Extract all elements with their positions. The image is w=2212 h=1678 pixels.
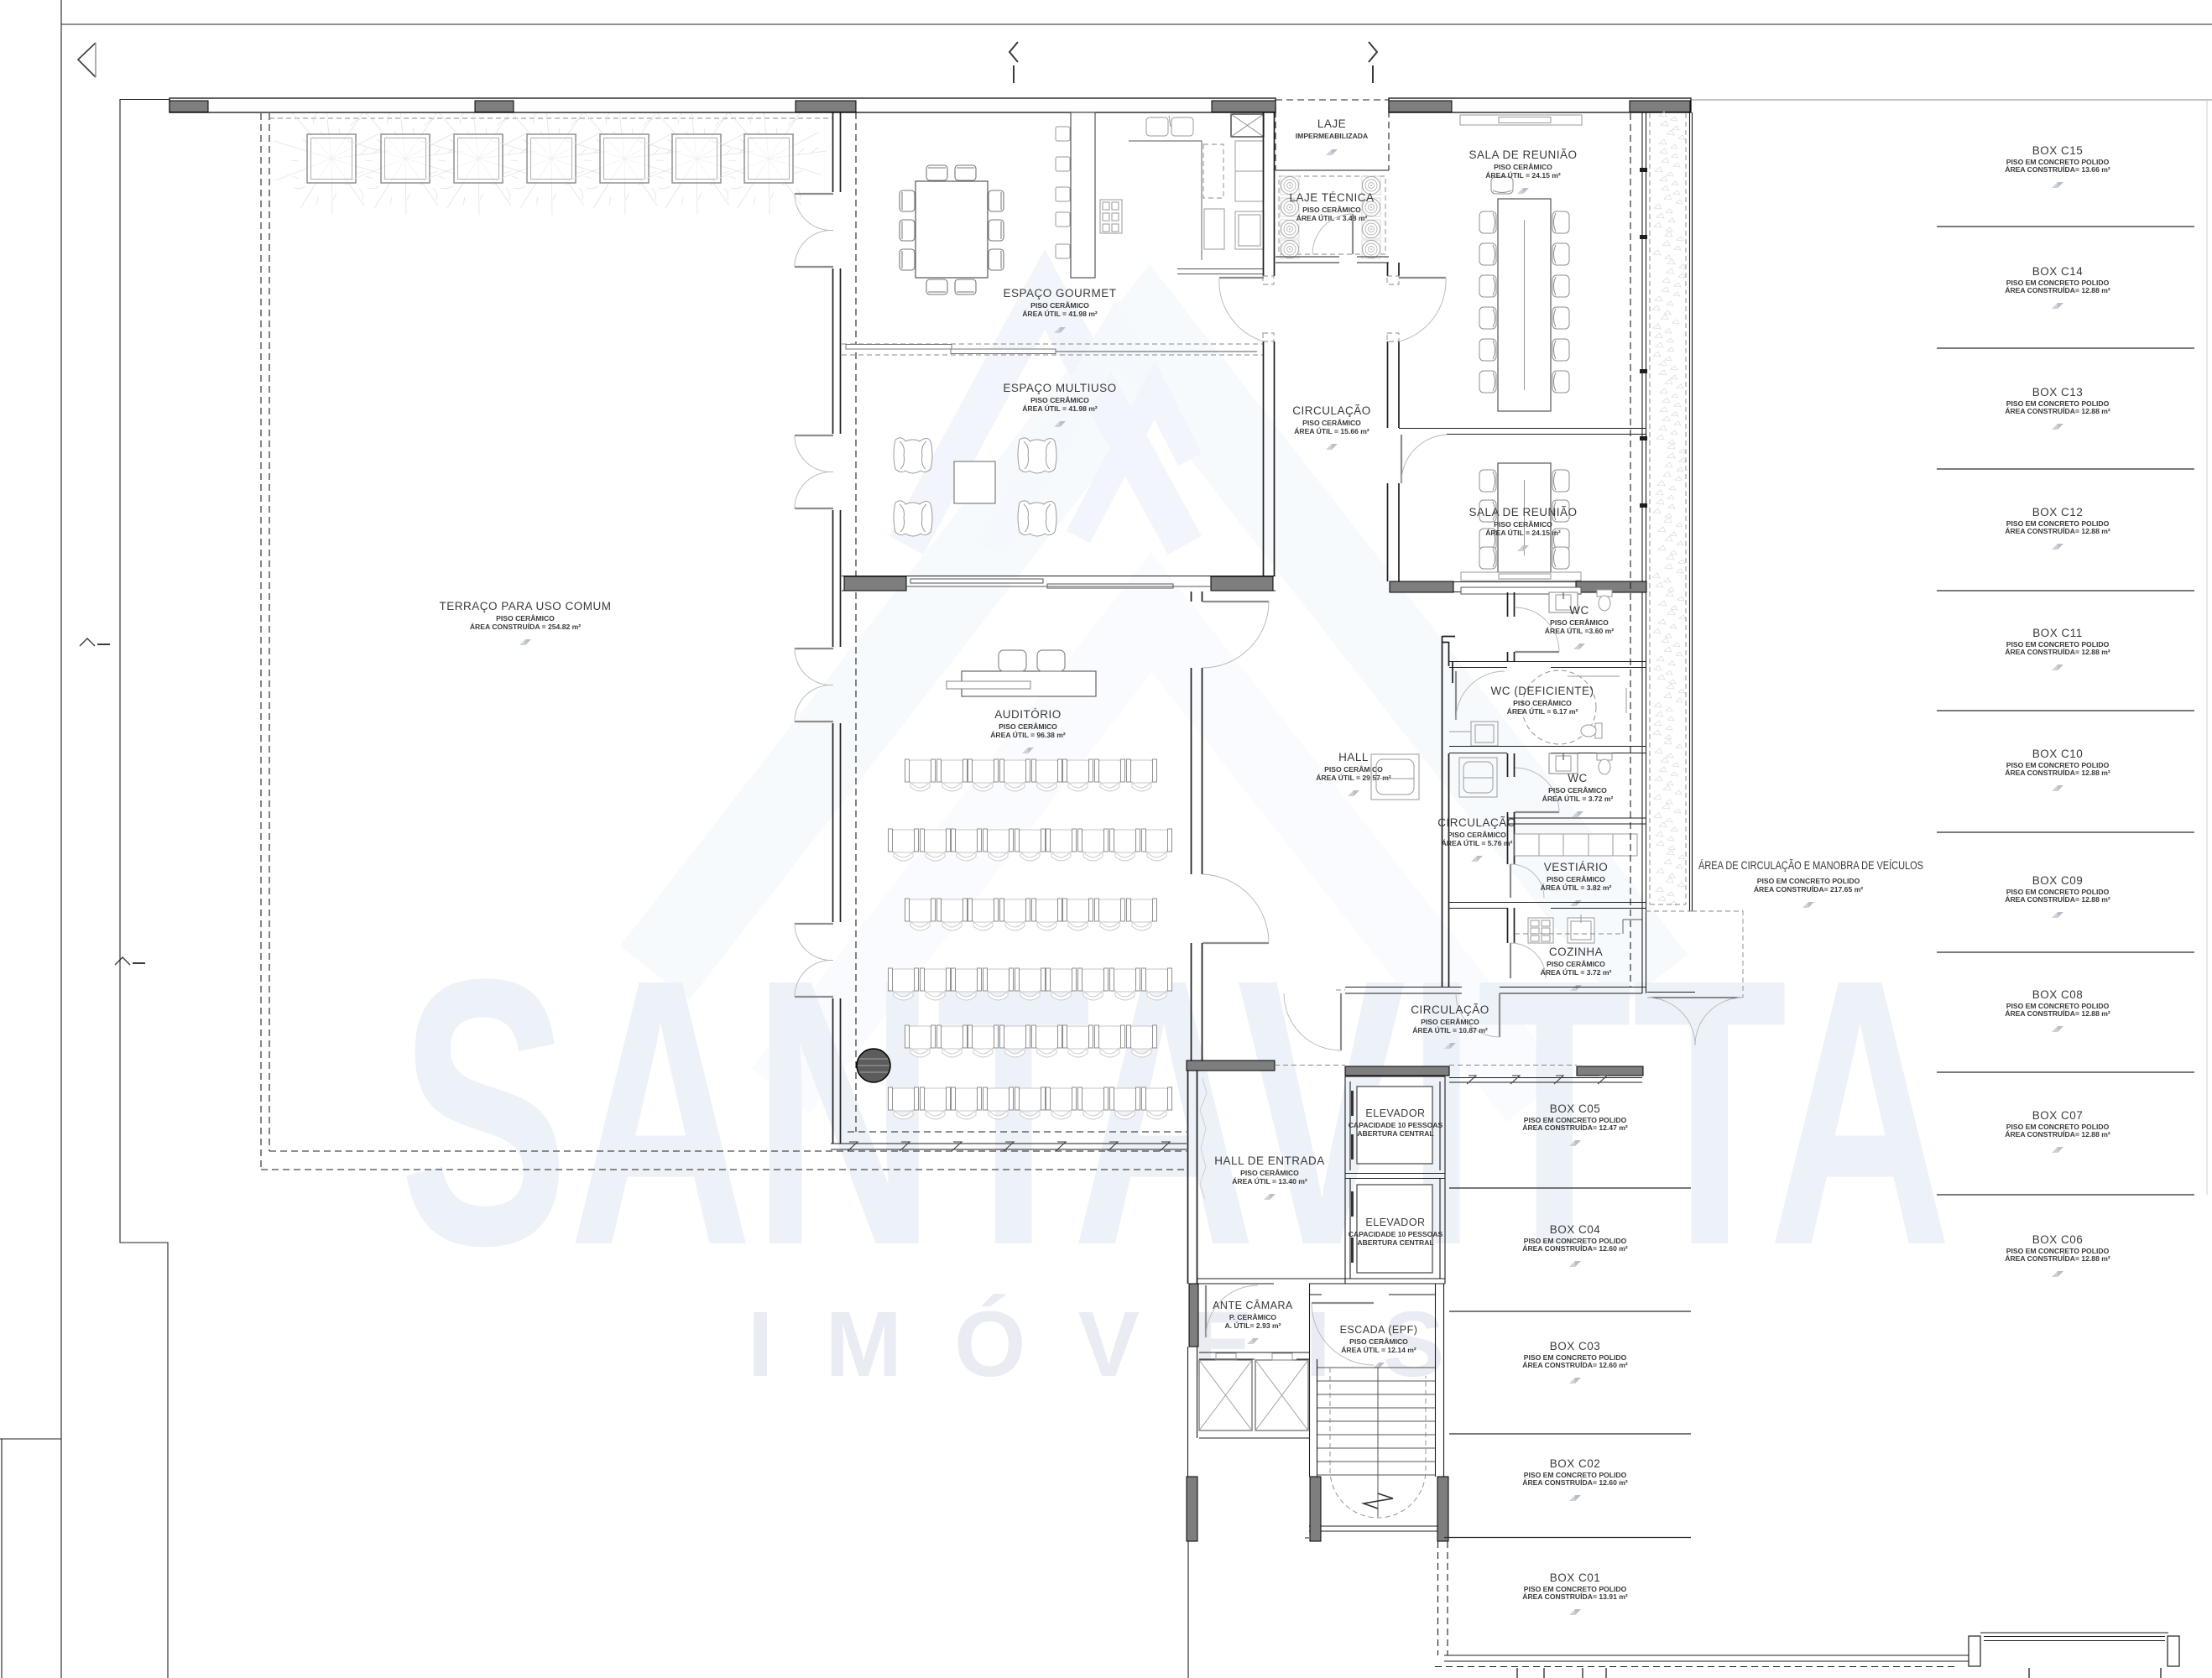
- svg-text:BOX C14: BOX C14: [2032, 265, 2084, 278]
- svg-text:HALL DE ENTRADA: HALL DE ENTRADA: [1214, 1154, 1325, 1167]
- svg-text:AUDITÓRIO: AUDITÓRIO: [994, 708, 1062, 721]
- svg-text:ABERTURA CENTRAL: ABERTURA CENTRAL: [1357, 1129, 1433, 1138]
- svg-text:PISO CERÂMICO: PISO CERÂMICO: [1494, 162, 1552, 171]
- svg-text:PISO CERÂMICO: PISO CERÂMICO: [496, 613, 555, 623]
- svg-text:ESPAÇO GOURMET: ESPAÇO GOURMET: [1003, 287, 1116, 300]
- svg-text:ÁREA CONSTRUÍDA= 13.66 m²: ÁREA CONSTRUÍDA= 13.66 m²: [2005, 165, 2110, 174]
- svg-text:ÁREA ÚTIL = 24.15 m²: ÁREA ÚTIL = 24.15 m²: [1485, 528, 1561, 537]
- svg-text:ÁREA CONSTRUÍDA= 12.88 m²: ÁREA CONSTRUÍDA= 12.88 m²: [2005, 769, 2110, 777]
- svg-text:ÁREA ÚTIL = 3.72 m²: ÁREA ÚTIL = 3.72 m²: [1541, 967, 1612, 977]
- svg-text:BOX C05: BOX C05: [1550, 1102, 1601, 1115]
- svg-text:BOX C06: BOX C06: [2032, 1233, 2084, 1246]
- svg-text:ÁREA ÚTIL = 24.15 m²: ÁREA ÚTIL = 24.15 m²: [1485, 170, 1561, 180]
- svg-text:LAJE TÉCNICA: LAJE TÉCNICA: [1289, 191, 1374, 204]
- svg-text:ÁREA ÚTIL = 3.48 m²: ÁREA ÚTIL = 3.48 m²: [1296, 213, 1368, 222]
- svg-text:ÁREA CONSTRUÍDA= 12.88 m²: ÁREA CONSTRUÍDA= 12.88 m²: [2005, 1009, 2110, 1018]
- svg-text:PISO CERÂMICO: PISO CERÂMICO: [1302, 418, 1361, 427]
- svg-text:BOX C13: BOX C13: [2032, 386, 2084, 399]
- svg-text:BOX C11: BOX C11: [2032, 627, 2083, 639]
- svg-text:ÁREA ÚTIL = 41.98 m²: ÁREA ÚTIL = 41.98 m²: [1022, 404, 1098, 413]
- svg-text:ESCADA (EPF): ESCADA (EPF): [1340, 1324, 1418, 1336]
- svg-text:HALL: HALL: [1338, 751, 1369, 763]
- svg-text:LAJE: LAJE: [1317, 117, 1346, 130]
- svg-text:IMPERMEABILIZADA: IMPERMEABILIZADA: [1296, 132, 1368, 140]
- svg-text:ANTE CÂMARA: ANTE CÂMARA: [1213, 1299, 1293, 1311]
- svg-text:PISO CERÂMICO: PISO CERÂMICO: [1421, 1017, 1479, 1026]
- svg-text:PISO CERÂMICO: PISO CERÂMICO: [1494, 519, 1552, 529]
- svg-text:A. ÚTIL= 2.93 m²: A. ÚTIL= 2.93 m²: [1224, 1321, 1281, 1330]
- svg-text:ESPAÇO MULTIUSO: ESPAÇO MULTIUSO: [1003, 382, 1116, 394]
- svg-text:PISO CERÂMICO: PISO CERÂMICO: [1030, 300, 1089, 310]
- svg-text:ÁREA ÚTIL = 41.98 m²: ÁREA ÚTIL = 41.98 m²: [1022, 309, 1098, 318]
- svg-text:VESTIÁRIO: VESTIÁRIO: [1544, 861, 1609, 873]
- svg-text:PISO CERÂMICO: PISO CERÂMICO: [1030, 395, 1089, 404]
- svg-text:BOX C08: BOX C08: [2032, 988, 2084, 1001]
- svg-text:ÁREA ÚTIL = 3.72 m²: ÁREA ÚTIL = 3.72 m²: [1542, 794, 1614, 803]
- svg-text:ÁREA CONSTRUÍDA= 12.88 m²: ÁREA CONSTRUÍDA= 12.88 m²: [2005, 895, 2110, 904]
- svg-text:WC (DEFICIENTE): WC (DEFICIENTE): [1491, 685, 1594, 697]
- svg-text:ÁREA CONSTRUÍDA= 12.60 m²: ÁREA CONSTRUÍDA= 12.60 m²: [1522, 1244, 1628, 1253]
- svg-text:PISO CERÂMICO: PISO CERÂMICO: [1547, 959, 1605, 968]
- svg-text:ÁREA ÚTIL = 29.57 m²: ÁREA ÚTIL = 29.57 m²: [1316, 773, 1391, 782]
- svg-text:ÁREA ÚTIL = 96.38 m²: ÁREA ÚTIL = 96.38 m²: [990, 730, 1066, 739]
- svg-text:ÁREA CONSTRUÍDA= 12.47 m²: ÁREA CONSTRUÍDA= 12.47 m²: [1522, 1123, 1628, 1132]
- svg-text:BOX C01: BOX C01: [1550, 1571, 1601, 1584]
- svg-text:SALA DE REUNIÃO: SALA DE REUNIÃO: [1469, 506, 1577, 519]
- svg-text:ÁREA CONSTRUÍDA= 12.88 m²: ÁREA CONSTRUÍDA= 12.88 m²: [2005, 286, 2110, 294]
- svg-text:SALA DE REUNIÃO: SALA DE REUNIÃO: [1469, 149, 1577, 161]
- svg-text:ÁREA ÚTIL = 15.66 m²: ÁREA ÚTIL = 15.66 m²: [1294, 426, 1369, 435]
- svg-text:ÁREA CONSTRUÍDA= 12.88 m²: ÁREA CONSTRUÍDA= 12.88 m²: [2005, 648, 2110, 656]
- svg-text:ÁREA CONSTRUÍDA= 12.88 m²: ÁREA CONSTRUÍDA= 12.88 m²: [2005, 407, 2110, 415]
- svg-text:BOX C07: BOX C07: [2032, 1109, 2084, 1122]
- svg-text:BOX C10: BOX C10: [2032, 748, 2084, 760]
- svg-text:PISO CERÂMICO: PISO CERÂMICO: [1448, 830, 1506, 839]
- svg-text:PISO CERÂMICO: PISO CERÂMICO: [1547, 874, 1605, 883]
- svg-text:PISO CERÂMICO: PISO CERÂMICO: [1324, 764, 1383, 774]
- svg-text:ÁREA CONSTRUÍDA= 12.60 m²: ÁREA CONSTRUÍDA= 12.60 m²: [1522, 1361, 1628, 1369]
- svg-text:P. CERÂMICO: P. CERÂMICO: [1229, 1312, 1277, 1321]
- svg-text:PISO CERÂMICO: PISO CERÂMICO: [1302, 205, 1361, 214]
- svg-text:COZINHA: COZINHA: [1549, 946, 1603, 958]
- svg-text:ÁREA ÚTIL = 13.40 m²: ÁREA ÚTIL = 13.40 m²: [1232, 1176, 1307, 1186]
- svg-text:ÁREA ÚTIL = 5.76 m²: ÁREA ÚTIL = 5.76 m²: [1442, 838, 1513, 847]
- svg-text:ÁREA CONSTRUÍDA= 12.88 m²: ÁREA CONSTRUÍDA= 12.88 m²: [2005, 1254, 2110, 1263]
- svg-text:ÁREA CONSTRUÍDA = 254.82 m²: ÁREA CONSTRUÍDA = 254.82 m²: [470, 623, 581, 631]
- svg-text:PISO CERÂMICO: PISO CERÂMICO: [1240, 1168, 1299, 1177]
- svg-text:CIRCULAÇÃO: CIRCULAÇÃO: [1411, 1003, 1489, 1016]
- svg-text:BOX C03: BOX C03: [1550, 1340, 1601, 1352]
- svg-text:CAPACIDADE 10 PESSOAS: CAPACIDADE 10 PESSOAS: [1349, 1230, 1443, 1238]
- svg-text:PISO CERÂMICO: PISO CERÂMICO: [1550, 618, 1609, 627]
- svg-text:PISO CERÂMICO: PISO CERÂMICO: [999, 722, 1057, 731]
- svg-text:BOX C15: BOX C15: [2032, 144, 2084, 157]
- svg-text:TERRAÇO PARA USO COMUM: TERRAÇO PARA USO COMUM: [439, 600, 611, 612]
- svg-text:SANTAVITTA: SANTAVITTA: [399, 900, 1952, 1324]
- svg-text:PISO EM CONCRETO POLIDO: PISO EM CONCRETO POLIDO: [1757, 877, 1860, 885]
- svg-text:CAPACIDADE 10 PESSOAS: CAPACIDADE 10 PESSOAS: [1349, 1121, 1443, 1129]
- svg-text:CIRCULAÇÃO: CIRCULAÇÃO: [1437, 816, 1516, 829]
- svg-text:ÁREA ÚTIL =3.60 m²: ÁREA ÚTIL =3.60 m²: [1545, 626, 1615, 635]
- svg-text:PISO CERÂMICO: PISO CERÂMICO: [1548, 785, 1607, 795]
- svg-text:BOX C12: BOX C12: [2032, 506, 2084, 519]
- svg-text:ÁREA ÚTIL = 12.14 m²: ÁREA ÚTIL = 12.14 m²: [1341, 1345, 1416, 1354]
- svg-text:ÁREA DE CIRCULAÇÃO E MANOBRA D: ÁREA DE CIRCULAÇÃO E MANOBRA DE VEÍCULOS: [1698, 858, 1923, 872]
- svg-text:ELEVADOR: ELEVADOR: [1365, 1217, 1425, 1228]
- svg-text:BOX C04: BOX C04: [1550, 1223, 1601, 1236]
- svg-text:ÁREA CONSTRUÍDA= 12.60 m²: ÁREA CONSTRUÍDA= 12.60 m²: [1522, 1478, 1628, 1487]
- svg-text:WC: WC: [1568, 772, 1588, 784]
- svg-text:ÁREA CONSTRUÍDA= 13.91 m²: ÁREA CONSTRUÍDA= 13.91 m²: [1522, 1592, 1628, 1601]
- svg-text:ELEVADOR: ELEVADOR: [1365, 1107, 1425, 1119]
- svg-text:ABERTURA CENTRAL: ABERTURA CENTRAL: [1357, 1238, 1433, 1247]
- svg-text:ÁREA ÚTIL = 3.82 m²: ÁREA ÚTIL = 3.82 m²: [1541, 883, 1612, 892]
- svg-text:CIRCULAÇÃO: CIRCULAÇÃO: [1292, 404, 1371, 417]
- svg-text:BOX C02: BOX C02: [1550, 1457, 1601, 1470]
- svg-text:BOX C09: BOX C09: [2032, 874, 2084, 887]
- svg-text:ÁREA CONSTRUÍDA= 12.88 m²: ÁREA CONSTRUÍDA= 12.88 m²: [2005, 527, 2110, 535]
- svg-text:WC: WC: [1569, 604, 1589, 617]
- svg-text:ÁREA CONSTRUÍDA= 12.88 m²: ÁREA CONSTRUÍDA= 12.88 m²: [2005, 1130, 2110, 1139]
- svg-text:ÁREA ÚTIL = 10.87 m²: ÁREA ÚTIL = 10.87 m²: [1412, 1025, 1488, 1034]
- svg-text:ÁREA CONSTRUÍDA= 217.65 m²: ÁREA CONSTRUÍDA= 217.65 m²: [1754, 885, 1863, 894]
- svg-text:PISO CERÂMICO: PISO CERÂMICO: [1513, 698, 1572, 707]
- svg-text:ÁREA ÚTIL = 6.17 m²: ÁREA ÚTIL = 6.17 m²: [1507, 706, 1578, 716]
- svg-text:PISO CERÂMICO: PISO CERÂMICO: [1349, 1337, 1408, 1346]
